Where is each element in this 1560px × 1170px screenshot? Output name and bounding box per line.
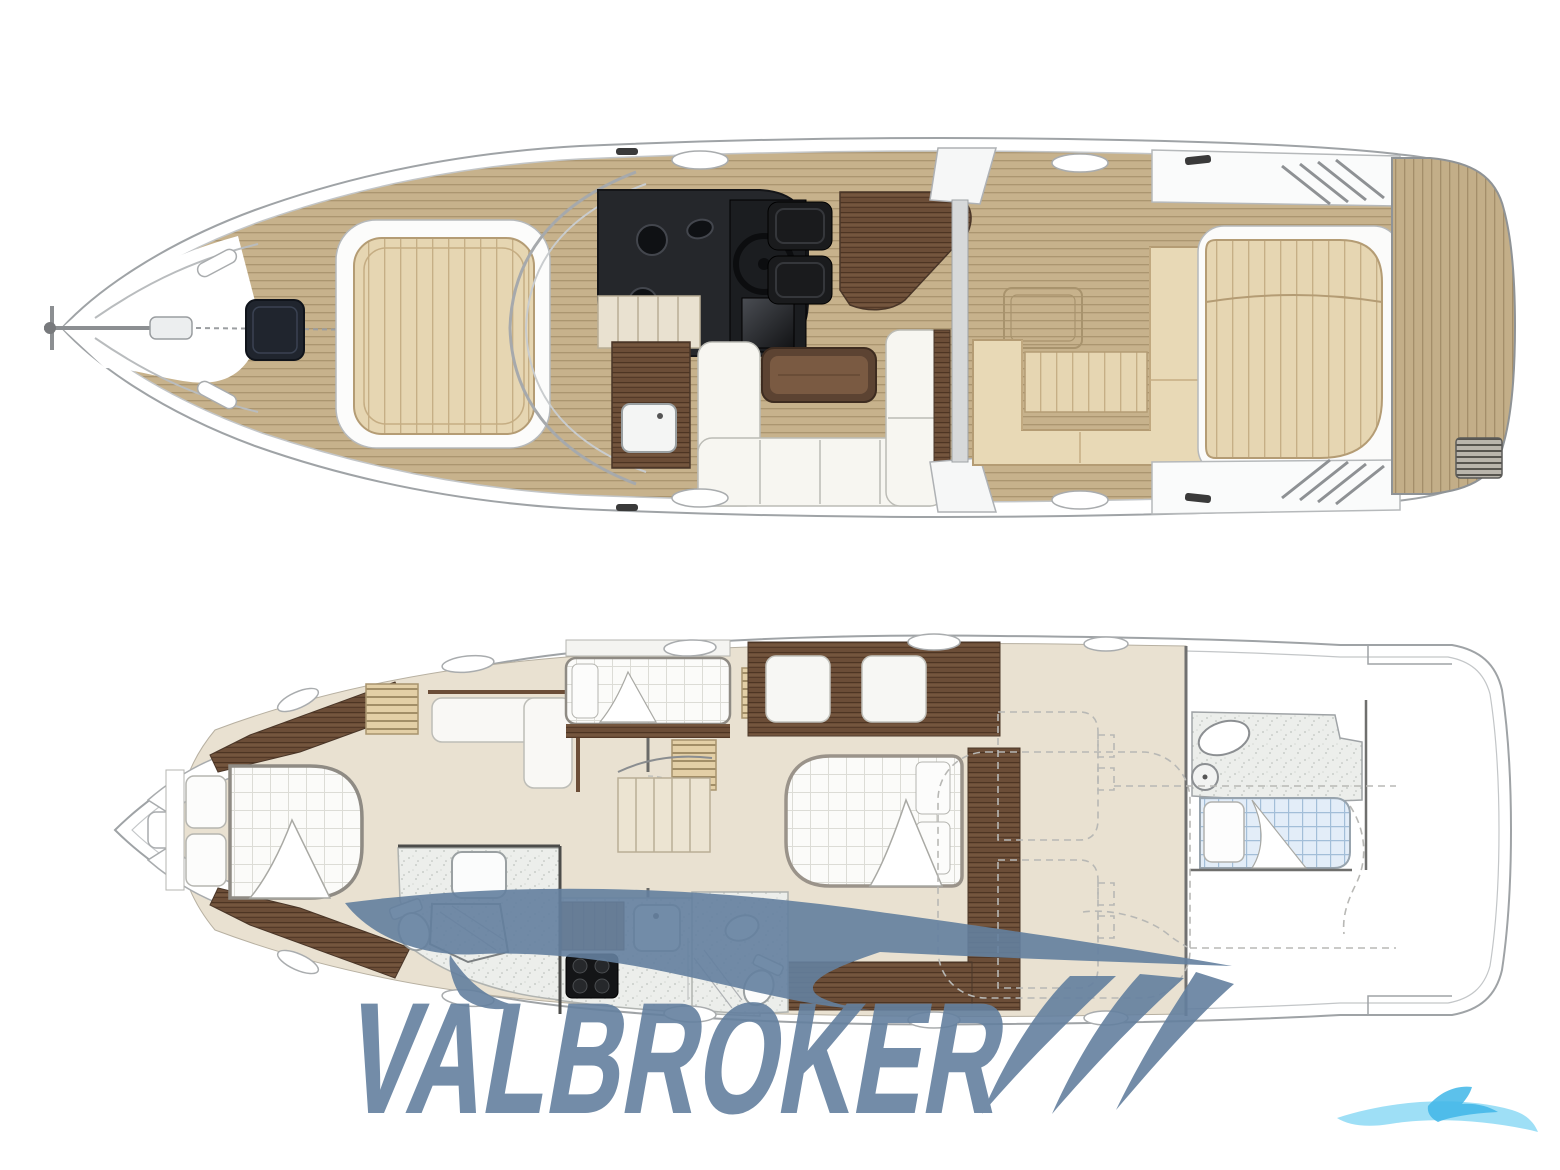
foredeck-sunpad bbox=[354, 238, 534, 434]
cockpit-table bbox=[762, 348, 876, 402]
seat-cushion bbox=[862, 656, 926, 722]
pillow bbox=[186, 834, 226, 886]
seat-cushion bbox=[766, 656, 830, 722]
aft-sunbed bbox=[1198, 226, 1400, 474]
master-headboard bbox=[166, 770, 184, 890]
pillow bbox=[916, 762, 950, 814]
sofa-back-trim bbox=[934, 330, 950, 466]
swim-platform bbox=[1392, 158, 1515, 494]
guest-bed-frame bbox=[566, 724, 730, 738]
crew-berth bbox=[1200, 798, 1350, 868]
main-deck-plan bbox=[44, 138, 1515, 517]
watermark-text: VALBROKER bbox=[336, 971, 1020, 1146]
stern-walkway-bottom bbox=[1152, 460, 1400, 514]
settee-backrest bbox=[1025, 352, 1147, 412]
bow-hatch-window bbox=[246, 300, 304, 360]
mid-cabin-bed bbox=[786, 756, 962, 886]
transom-hatch-grate bbox=[1456, 438, 1502, 478]
wetbar bbox=[612, 342, 690, 468]
yacht-floorplan-image: VALBROKER bbox=[0, 0, 1560, 1170]
shelf-slats bbox=[366, 684, 418, 734]
gauge-icon bbox=[637, 225, 667, 255]
pillow bbox=[1204, 802, 1244, 862]
faucet-icon bbox=[657, 413, 663, 419]
helm-screen bbox=[742, 298, 794, 348]
corner-wave-logo bbox=[1337, 1087, 1538, 1132]
companionway-steps bbox=[598, 296, 700, 348]
wetbar-sink bbox=[622, 404, 676, 452]
floorplan-svg: VALBROKER bbox=[0, 0, 1560, 1170]
pillow bbox=[572, 664, 598, 718]
pillow bbox=[186, 776, 226, 828]
arch-leg-post bbox=[952, 200, 968, 462]
